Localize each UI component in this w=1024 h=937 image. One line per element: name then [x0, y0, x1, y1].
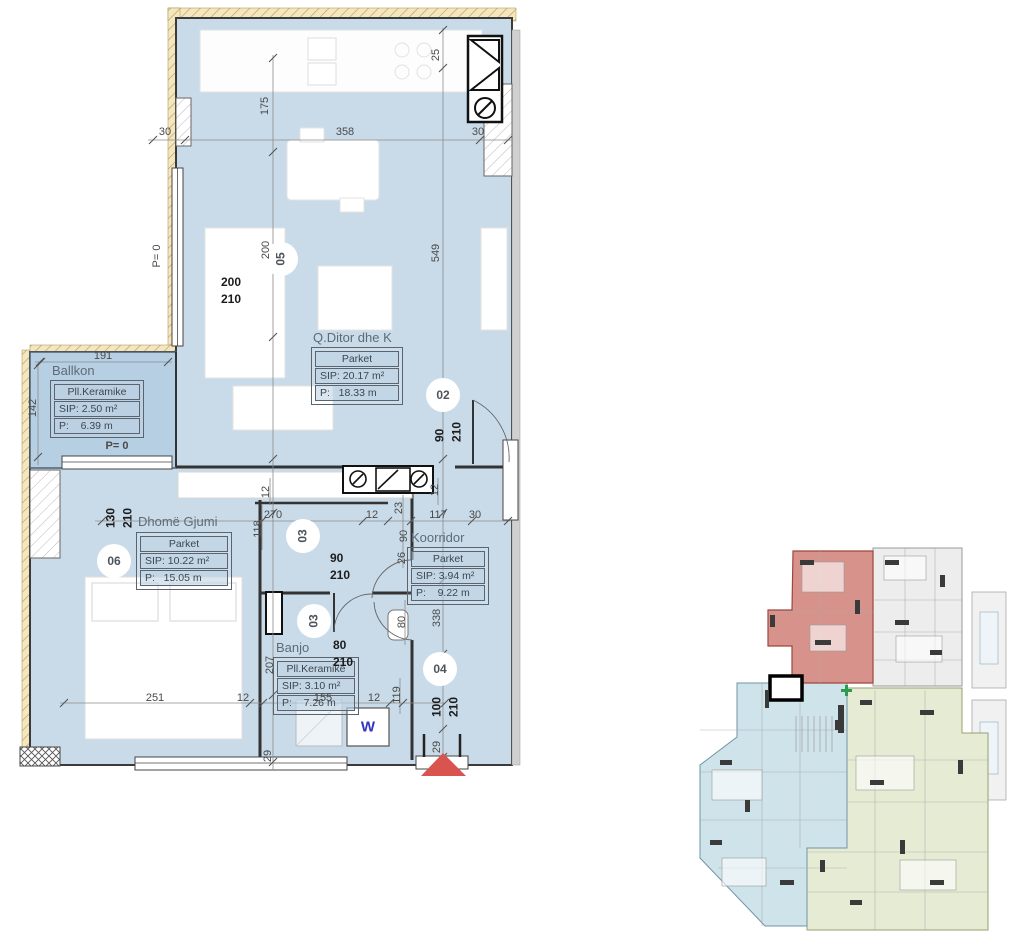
room-perimeter: P: 9.22 m: [411, 585, 485, 601]
room-floor: Parket: [315, 351, 399, 367]
dim-label: 30: [472, 126, 484, 138]
dim-label: 30: [469, 509, 481, 521]
floor-plan-drawing: [0, 0, 1024, 937]
size-label-200x210: 200210: [221, 242, 241, 323]
overview-plan: [700, 548, 1006, 930]
room-perimeter: P: 6.39 m: [54, 418, 140, 434]
dim-label: 30: [159, 126, 171, 138]
room-perimeter: P: 15.05 m: [140, 570, 228, 586]
tag-03b: 03: [297, 604, 331, 638]
dim-label: 191: [94, 350, 112, 362]
dim-label: 26: [396, 552, 408, 564]
dim-label: 23: [393, 502, 405, 514]
washer-label: W: [361, 719, 375, 736]
dim-label: 338: [431, 609, 443, 627]
room-info-box: Parket SIP: 20.17 m² P: 18.33 m: [311, 347, 403, 405]
dim-label: 80: [396, 616, 408, 628]
dim-label: 29: [431, 741, 443, 753]
room-area: SIP: 2.50 m²: [54, 401, 140, 417]
right-wall: [512, 30, 520, 765]
dim-label: 12: [237, 692, 249, 704]
room-area: SIP: 10.22 m²: [140, 553, 228, 569]
room-area: SIP: 20.17 m²: [315, 368, 399, 384]
dim-label: 12: [429, 484, 441, 496]
dim-label: 358: [336, 126, 354, 138]
tag-02: 02: [426, 378, 460, 412]
dim-label: 25: [430, 49, 442, 61]
size-label-100x210: 100210: [397, 697, 478, 717]
dim-label: 251: [146, 692, 164, 704]
room-floor: Pll.Keramike: [54, 384, 140, 400]
room-floor: Parket: [411, 551, 485, 567]
room-name: Banjo: [276, 640, 309, 655]
p-zero-label: P= 0: [151, 245, 163, 268]
fridge-unit: [468, 36, 502, 122]
size-label-80x210: 80210: [333, 605, 353, 686]
dim-label: 117: [429, 509, 447, 521]
room-floor: Parket: [140, 536, 228, 552]
dim-label: 142: [27, 399, 39, 417]
tag-04: 04: [423, 652, 457, 686]
tag-06: 06: [97, 544, 131, 578]
room-name: Q.Ditor dhe K: [313, 330, 392, 345]
overview-elevator: [770, 676, 802, 700]
tag-03: 03: [286, 519, 320, 553]
dim-label: 90: [398, 530, 410, 542]
dim-label: 12: [260, 486, 272, 498]
dim-label: 118: [252, 520, 264, 538]
dim-label: 270: [264, 509, 282, 521]
p-zero-label: P= 0: [106, 440, 129, 452]
dim-label: 549: [430, 244, 442, 262]
dim-label: 12: [368, 692, 380, 704]
room-name: Ballkon: [52, 363, 95, 378]
room-info-box: Parket SIP: 3.94 m² P: 9.22 m: [407, 547, 489, 605]
dim-label: 207: [264, 656, 276, 674]
size-label-130x210: 130210: [71, 508, 152, 528]
dim-label: 175: [259, 97, 271, 115]
dim-label: 29: [262, 750, 274, 762]
room-info-box: Parket SIP: 10.22 m² P: 15.05 m: [136, 532, 232, 590]
dim-label: 200: [260, 241, 272, 259]
dim-label: 155: [314, 692, 332, 704]
dim-label: 119: [391, 686, 403, 704]
room-area: SIP: 3.94 m²: [411, 568, 485, 584]
size-label-90x210b: 90210: [330, 518, 350, 599]
size-label-90x210: 90210: [400, 422, 481, 442]
floor-plan-canvas: Q.Ditor dhe K Parket SIP: 20.17 m² P: 18…: [0, 0, 1024, 937]
dim-label: 12: [366, 509, 378, 521]
room-name: Koorridor: [411, 530, 464, 545]
room-perimeter: P: 18.33 m: [315, 385, 399, 401]
room-info-box: Pll.Keramike SIP: 2.50 m² P: 6.39 m: [50, 380, 144, 438]
